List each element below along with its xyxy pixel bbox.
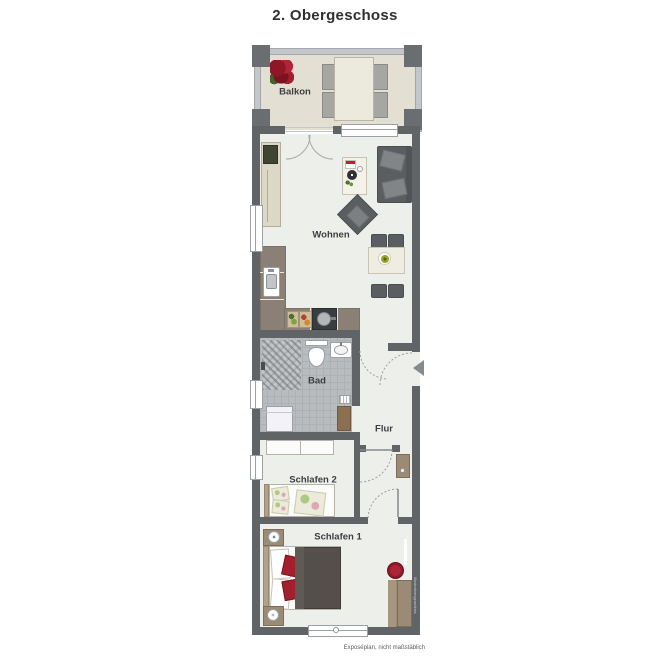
wall	[388, 343, 412, 351]
cutting-board-icon	[299, 311, 312, 328]
room-label-schlafen1: Schlafen 1	[314, 532, 362, 543]
tv-on-sideboard	[263, 145, 278, 164]
red-chair-seat	[390, 565, 401, 576]
toilet-tank	[305, 340, 328, 346]
balcony-door-sill	[285, 131, 333, 132]
wall-shelf	[404, 539, 407, 565]
living-room-side-window	[250, 205, 263, 252]
shower-fitting-icon	[261, 362, 265, 370]
wardrobe-divider	[397, 580, 398, 627]
wall	[352, 338, 360, 406]
counter-divider	[337, 308, 338, 330]
room-label-wohnen: Wohnen	[312, 230, 349, 241]
bedroom2-window	[250, 455, 263, 480]
shower	[262, 340, 301, 390]
kitchen-sink-bowl	[266, 274, 277, 289]
washing-machine	[266, 406, 293, 432]
room-label-schlafen2: Schlafen 2	[289, 475, 337, 486]
pillow	[271, 499, 289, 515]
lamp-icon	[268, 531, 280, 543]
pot-handle	[330, 317, 336, 320]
food-icon	[381, 255, 389, 263]
dining-chair	[388, 284, 404, 298]
page-title: 2. Obergeschoss	[0, 7, 670, 24]
flower-pot-icon	[270, 60, 294, 86]
balcony-door-sill	[285, 127, 333, 128]
wall	[252, 432, 360, 440]
wall	[354, 440, 360, 523]
wall	[392, 445, 400, 452]
dining-chair	[371, 284, 387, 298]
magazine-icon	[345, 160, 356, 169]
balcony-post	[252, 45, 270, 67]
balcony-chair	[372, 64, 388, 90]
cutting-board-icon	[287, 311, 299, 328]
washing-machine-lid-line	[266, 412, 293, 413]
plant-sprig-icon	[345, 179, 354, 188]
washbasin-tap-icon	[340, 342, 342, 346]
folded-blanket	[294, 489, 327, 516]
wall	[333, 126, 341, 134]
balcony-post	[404, 45, 422, 67]
room-label-flur: Flur	[375, 424, 393, 435]
washbasin-bowl	[334, 345, 348, 355]
vertical-watermark-text: Illustrationsgrundriss	[412, 577, 419, 633]
wall	[398, 517, 420, 524]
balcony-railing-top	[254, 48, 422, 55]
bathroom-door-leaf	[337, 406, 351, 431]
plan-disclaimer: Exposéplan, nicht maßstäblich	[344, 645, 425, 651]
wall	[252, 517, 368, 524]
counter-divider	[260, 299, 284, 300]
entrance-arrow-icon	[413, 360, 424, 376]
floor-plan-page: 2. Obergeschoss	[0, 0, 670, 670]
dining-chair	[388, 234, 404, 248]
cooking-pot-icon	[317, 312, 331, 326]
duvet-fold	[295, 547, 304, 609]
lamp-icon	[267, 609, 279, 621]
dining-chair	[371, 234, 387, 248]
room-label-bad: Bad	[308, 376, 326, 387]
living-room-window	[341, 124, 398, 137]
kitchen-tap-icon	[268, 269, 274, 272]
wardrobe-shelf-column	[388, 580, 396, 627]
cabinet-knob	[400, 468, 405, 473]
wardrobe-divider	[300, 440, 301, 455]
cup-icon	[357, 166, 363, 172]
heater-icon	[339, 395, 351, 404]
room-label-balkon: Balkon	[279, 87, 311, 98]
hallway-cabinet	[396, 454, 410, 478]
wall	[252, 330, 360, 338]
bathroom-window	[250, 380, 263, 409]
balcony-table	[334, 57, 374, 121]
balcony-chair	[372, 92, 388, 118]
window-handle-icon	[333, 627, 339, 633]
sideboard-edge	[267, 170, 268, 222]
